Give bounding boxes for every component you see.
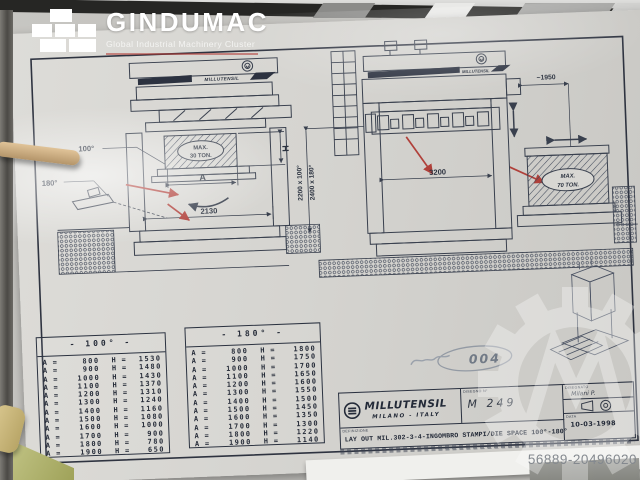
label-2400x180: 2400 x 180° bbox=[307, 164, 316, 200]
photo-of-technical-drawing: M MILLUTENSIL MAX. 30 TON. A H 2130 100°… bbox=[0, 0, 640, 480]
gindumac-tagline: Global Industrial Machinery Cluster bbox=[106, 39, 269, 49]
title-block-brand-name: MILLUTENSIL bbox=[364, 397, 447, 412]
drawing-sheet: M MILLUTENSIL MAX. 30 TON. A H 2130 100°… bbox=[10, 9, 640, 480]
title-block-city: MILANO - ITALY bbox=[365, 411, 448, 420]
title-block-brand: MILLUTENSIL MILANO - ITALY bbox=[339, 389, 462, 428]
ladder bbox=[331, 51, 359, 156]
band-decor bbox=[313, 3, 376, 18]
svg-text:30 TON.: 30 TON. bbox=[190, 153, 212, 160]
front-view bbox=[51, 56, 321, 274]
gindumac-watermark: GINDUMAC Global Industrial Machinery Clu… bbox=[26, 7, 286, 61]
gindumac-bricks-icon bbox=[32, 9, 98, 55]
label-a: A bbox=[199, 172, 206, 182]
title-block-right-column: DISEGNATO Milani P. DATA 10-03-1998 bbox=[563, 382, 634, 419]
label-100deg: 100° bbox=[78, 144, 94, 154]
first-angle-projection-icon bbox=[579, 399, 617, 412]
handwritten-note: 004 bbox=[410, 343, 513, 375]
die-block-70t bbox=[512, 81, 638, 246]
gindumac-red-line bbox=[106, 53, 258, 55]
isometric-view bbox=[547, 258, 629, 361]
svg-text:M: M bbox=[246, 64, 250, 69]
gindumac-brand: GINDUMAC bbox=[106, 7, 269, 38]
table-100deg: - 100° - A=800H=1530A=900H=1480A=1000H=1… bbox=[36, 332, 171, 458]
table-180deg: - 180° - A=800H=1800A=900H=1750A=1000H=1… bbox=[184, 322, 325, 448]
svg-text:MAX.: MAX. bbox=[561, 173, 576, 180]
drawing-number-cell: DISEGNO N° M 249 bbox=[461, 385, 564, 423]
label-2130: 2130 bbox=[200, 206, 217, 216]
die-max-label: MAX. bbox=[193, 145, 208, 152]
listing-id: 56889-20496020 bbox=[528, 452, 637, 467]
label-3200: 3200 bbox=[429, 167, 446, 177]
brand-front: MILLUTENSIL bbox=[204, 76, 239, 82]
note-004: 004 bbox=[468, 350, 501, 366]
dimension-h bbox=[238, 132, 285, 167]
label-h: H bbox=[280, 145, 290, 152]
brand-side: MILLUTENSIL bbox=[462, 68, 490, 74]
label-180deg: 180° bbox=[42, 178, 58, 188]
label-1950: ~1950 bbox=[536, 74, 556, 82]
millutensil-logo-icon bbox=[343, 402, 361, 420]
date-cell: DATA 10-03-1998 bbox=[564, 411, 635, 429]
label-2200x100: 2200 x 100° bbox=[295, 165, 304, 201]
svg-text:70 TON.: 70 TON. bbox=[557, 182, 579, 189]
